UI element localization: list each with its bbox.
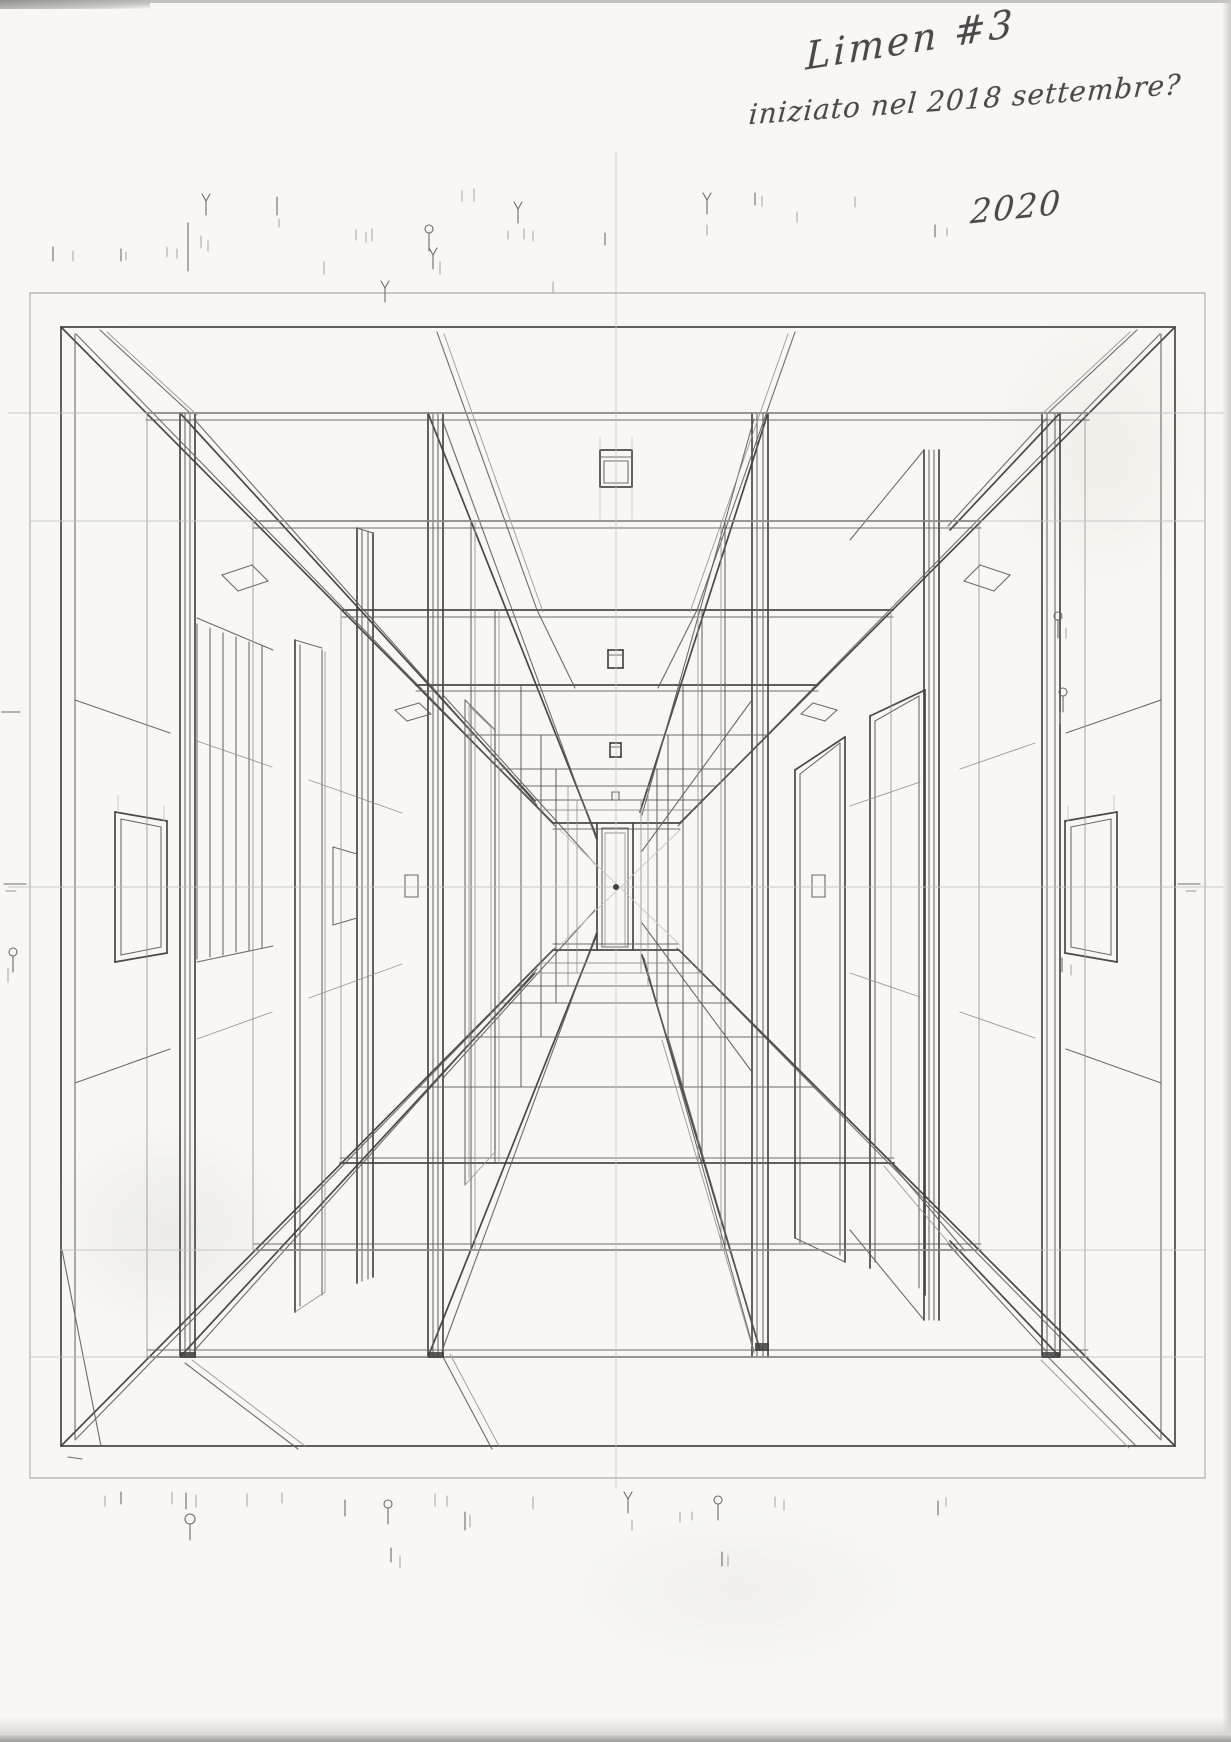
vanishing-point-dot [613, 884, 619, 890]
scanned-drawing-page: Limen #3 iniziato nel 2018 settembre? 20… [0, 0, 1231, 1742]
perspective-drawing-svg [0, 0, 1231, 1742]
stroke-group-l [6, 189, 1205, 1568]
stroke-group-m [2, 193, 1200, 1566]
